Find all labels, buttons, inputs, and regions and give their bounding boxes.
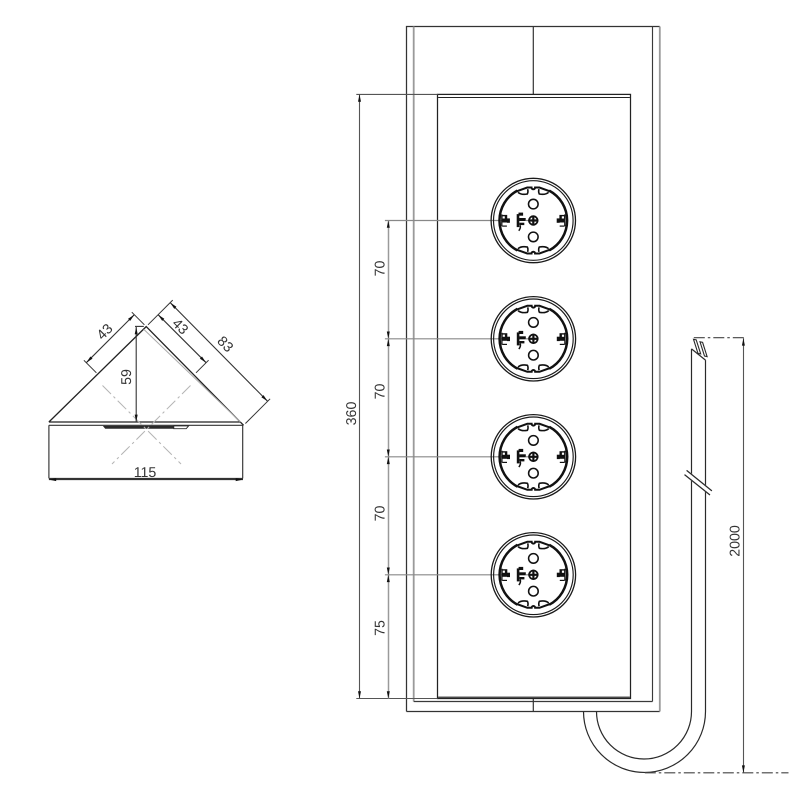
svg-text:59: 59 [119, 369, 135, 385]
svg-text:43: 43 [94, 321, 117, 344]
svg-text:70: 70 [372, 261, 388, 277]
svg-text:83: 83 [214, 333, 237, 356]
svg-text:360: 360 [344, 402, 360, 426]
svg-text:70: 70 [372, 384, 388, 400]
svg-text:2000: 2000 [728, 525, 744, 557]
svg-text:115: 115 [134, 465, 157, 481]
svg-text:70: 70 [372, 506, 388, 522]
svg-text:43: 43 [169, 316, 192, 339]
svg-text:75: 75 [372, 620, 388, 636]
